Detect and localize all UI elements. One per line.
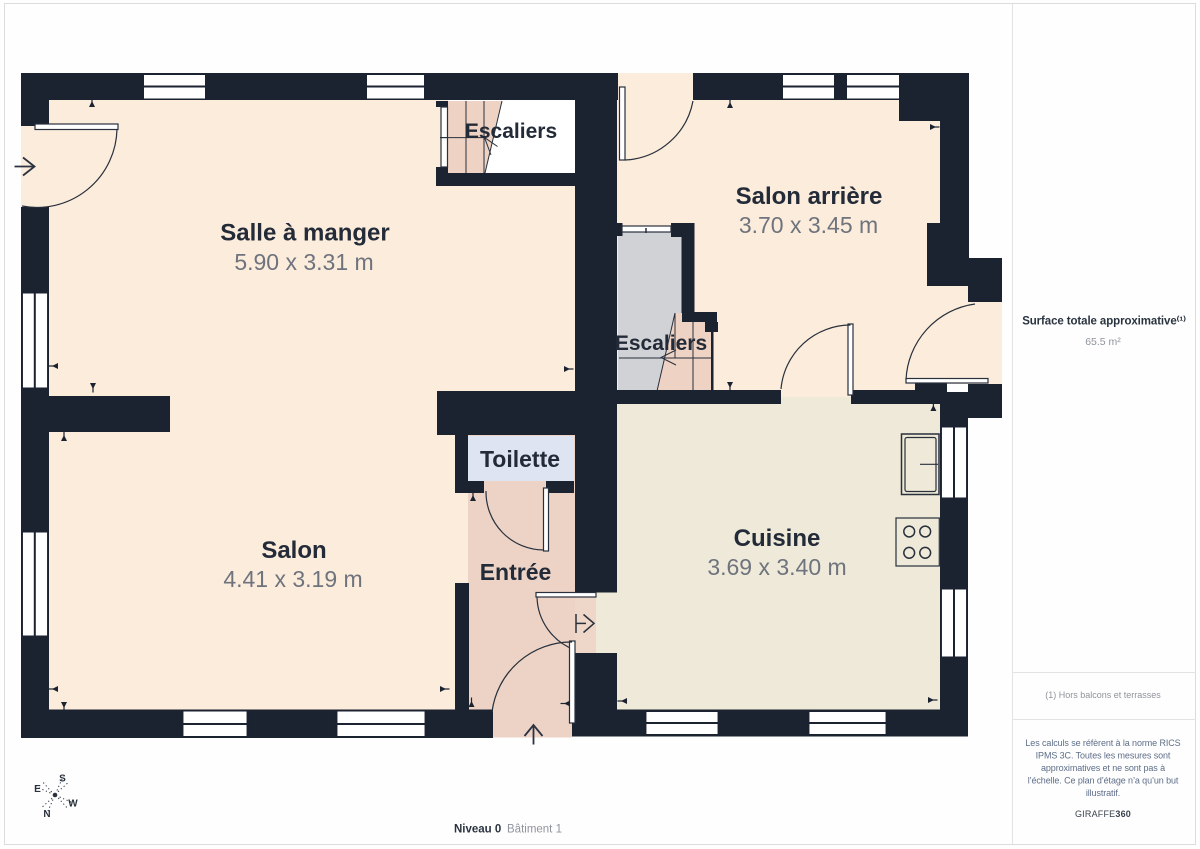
svg-text:S: S [59,774,66,785]
svg-text:Bâtiment 1: Bâtiment 1 [507,824,562,836]
svg-text:Escaliers: Escaliers [465,120,557,143]
svg-text:Niveau 0: Niveau 0 [454,824,501,836]
svg-text:Escaliers: Escaliers [615,332,707,355]
svg-text:illustratif.: illustratif. [1086,788,1120,798]
svg-text:65.5 m²: 65.5 m² [1085,336,1121,348]
svg-text:(1) Hors balcons et terrasses: (1) Hors balcons et terrasses [1045,690,1161,700]
svg-text:IPMS 3C. Toutes les mesures so: IPMS 3C. Toutes les mesures sont [1036,751,1171,761]
svg-text:N: N [43,809,50,820]
svg-text:Surface totale approximative⁽¹: Surface totale approximative⁽¹⁾ [1022,315,1186,328]
svg-text:4.41 x 3.19 m: 4.41 x 3.19 m [223,566,362,592]
svg-text:Toilette: Toilette [480,446,560,472]
svg-text:5.90 x 3.31 m: 5.90 x 3.31 m [234,249,373,275]
svg-text:Salon: Salon [261,537,326,564]
svg-text:approximatives et ne sont pas: approximatives et ne sont pas à [1041,763,1165,773]
svg-text:Les calculs se réfèrent à la n: Les calculs se réfèrent à la norme RICS [1025,738,1180,748]
svg-text:Entrée: Entrée [480,559,552,585]
svg-text:l’échelle. Ce plan d’étage n’a: l’échelle. Ce plan d’étage n’a qu’un but [1028,776,1179,786]
svg-text:E: E [34,784,41,795]
svg-text:Cuisine: Cuisine [734,525,821,552]
svg-text:W: W [68,799,78,810]
svg-text:3.69 x 3.40 m: 3.69 x 3.40 m [707,554,846,580]
svg-text:3.70 x 3.45 m: 3.70 x 3.45 m [739,212,878,238]
svg-text:GIRAFFE360: GIRAFFE360 [1075,809,1131,819]
svg-text:Salle à manger: Salle à manger [220,220,389,247]
svg-text:Salon arrière: Salon arrière [736,183,883,210]
